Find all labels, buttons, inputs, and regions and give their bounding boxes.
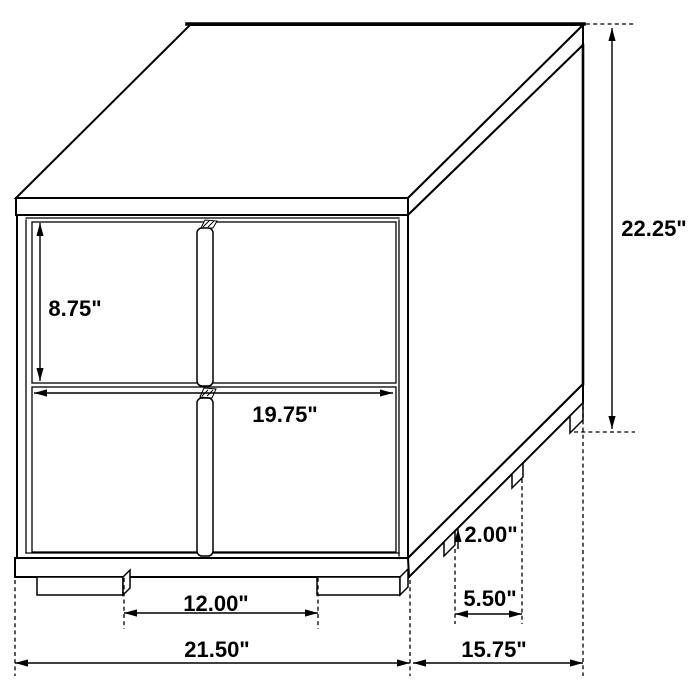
furniture-dimension-diagram: 8.75" 19.75" 22.25" 2.00" 5.50" 12.00" 2…	[0, 0, 700, 700]
nightstand-isometric-drawing: 8.75" 19.75" 22.25" 2.00" 5.50" 12.00" 2…	[0, 0, 700, 700]
dim-label-drawer-width: 19.75"	[252, 402, 317, 427]
handle-bar-upper	[197, 228, 213, 386]
leg-face	[37, 577, 123, 595]
dim-label-upper-drawer-height: 8.75"	[48, 296, 101, 321]
dim-label-side-leg-spacing: 5.50"	[463, 586, 516, 611]
dim-label-leg-height: 2.00"	[464, 522, 517, 547]
base-rail-front	[15, 558, 409, 577]
dim-label-overall-depth: 15.75"	[461, 637, 526, 662]
dim-label-front-leg-spacing: 12.00"	[183, 591, 248, 616]
handle-bar-lower	[197, 398, 213, 556]
drawer-handle-lower	[197, 388, 216, 556]
cabinet-top-front-edge	[16, 198, 408, 215]
dim-label-overall-height: 22.25"	[621, 216, 686, 241]
dim-leg-height: 2.00"	[458, 522, 518, 549]
leg-face	[317, 577, 400, 595]
dim-label-overall-width: 21.50"	[184, 637, 249, 662]
